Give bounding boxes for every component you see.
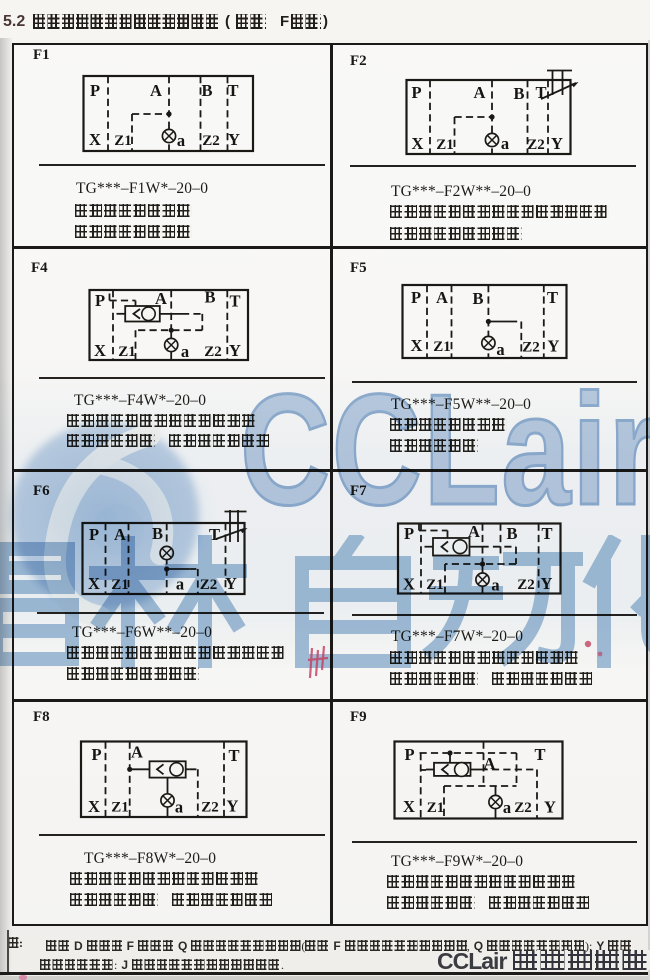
svg-text:T: T bbox=[228, 746, 239, 765]
svg-text:Z1: Z1 bbox=[427, 800, 445, 816]
svg-text:Z1: Z1 bbox=[436, 137, 454, 153]
svg-text:a: a bbox=[177, 131, 185, 150]
svg-text:B: B bbox=[201, 81, 212, 100]
svg-text:Y: Y bbox=[544, 798, 556, 817]
svg-text:P: P bbox=[95, 291, 105, 310]
svg-text:A: A bbox=[150, 81, 162, 100]
svg-text:Z2: Z2 bbox=[204, 344, 222, 360]
svg-text:Z2: Z2 bbox=[202, 133, 220, 149]
svg-text:Y: Y bbox=[548, 337, 560, 356]
svg-text:X: X bbox=[403, 797, 415, 816]
svg-text:Z1: Z1 bbox=[118, 344, 136, 360]
svg-text:A: A bbox=[484, 754, 496, 773]
svg-text:A: A bbox=[155, 289, 167, 308]
svg-text:a: a bbox=[496, 340, 504, 359]
svg-text:Y: Y bbox=[551, 134, 563, 153]
svg-text:X: X bbox=[412, 134, 424, 153]
svg-text:a: a bbox=[181, 342, 189, 361]
svg-text:X: X bbox=[94, 341, 106, 360]
svg-text:T: T bbox=[227, 81, 238, 100]
svg-text:a: a bbox=[503, 798, 511, 817]
svg-text:B: B bbox=[204, 288, 215, 307]
svg-text:T: T bbox=[547, 288, 558, 307]
svg-text:Z1: Z1 bbox=[114, 133, 132, 149]
svg-text:P: P bbox=[411, 83, 421, 102]
svg-text:A: A bbox=[131, 743, 143, 762]
svg-text:A: A bbox=[436, 288, 448, 307]
svg-text:Y: Y bbox=[229, 341, 241, 360]
svg-text:a: a bbox=[175, 798, 183, 817]
svg-text:Z1: Z1 bbox=[111, 800, 129, 816]
svg-text:Z2: Z2 bbox=[522, 340, 540, 356]
svg-text:X: X bbox=[88, 797, 100, 816]
svg-text:B: B bbox=[472, 289, 483, 308]
svg-text:P: P bbox=[91, 745, 101, 764]
svg-text:P: P bbox=[404, 745, 414, 764]
svg-text:a: a bbox=[501, 134, 509, 153]
svg-text:P: P bbox=[90, 81, 100, 100]
svg-text:Y: Y bbox=[228, 130, 240, 149]
svg-text:Y: Y bbox=[227, 797, 239, 816]
svg-text:Z2: Z2 bbox=[527, 137, 545, 153]
svg-text:X: X bbox=[89, 130, 101, 149]
svg-text:P: P bbox=[411, 288, 421, 307]
svg-text:T: T bbox=[535, 83, 546, 102]
svg-text:T: T bbox=[534, 745, 545, 764]
svg-text:Z1: Z1 bbox=[433, 339, 451, 355]
svg-text:T: T bbox=[229, 292, 240, 311]
svg-text:A: A bbox=[474, 83, 486, 102]
svg-text:X: X bbox=[411, 336, 423, 355]
svg-text:Z2: Z2 bbox=[201, 800, 219, 816]
svg-text:B: B bbox=[513, 84, 524, 103]
svg-text:Z2: Z2 bbox=[514, 800, 532, 816]
